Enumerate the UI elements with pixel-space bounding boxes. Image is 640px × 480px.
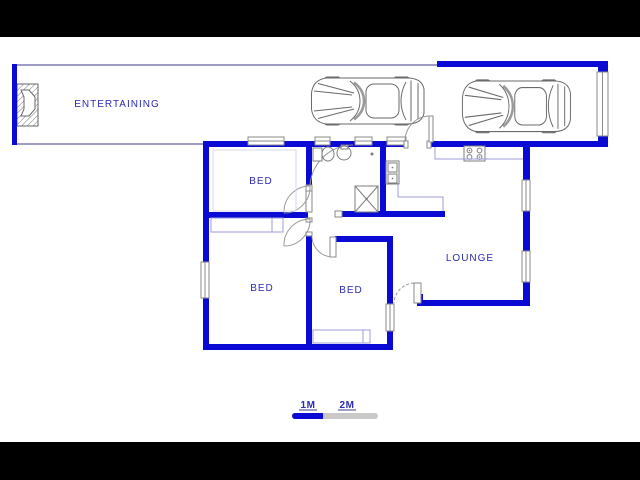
room-label-lounge: LOUNGE — [446, 253, 494, 264]
floorplan-drawing: ENTERTAINING BED BED BED LOUNGE 1M 2M — [0, 0, 640, 480]
scale-label-1m: 1M — [301, 400, 316, 411]
shower-icon — [355, 186, 378, 212]
double-sink-icon — [386, 161, 399, 184]
room-label-entertaining: ENTERTAINING — [74, 99, 160, 110]
room-label-bed-top: BED — [249, 176, 273, 187]
room-label-bed-middle: BED — [339, 285, 363, 296]
room-label-bed-left: BED — [250, 283, 274, 294]
drain-dot — [371, 153, 374, 156]
scale-label-2m: 2M — [340, 400, 355, 411]
car-icon-1 — [312, 77, 425, 125]
car-icon-2 — [462, 80, 570, 133]
fireplace-icon — [17, 84, 38, 126]
floorplan-page: ENTERTAINING BED BED BED LOUNGE 1M 2M — [0, 0, 640, 480]
